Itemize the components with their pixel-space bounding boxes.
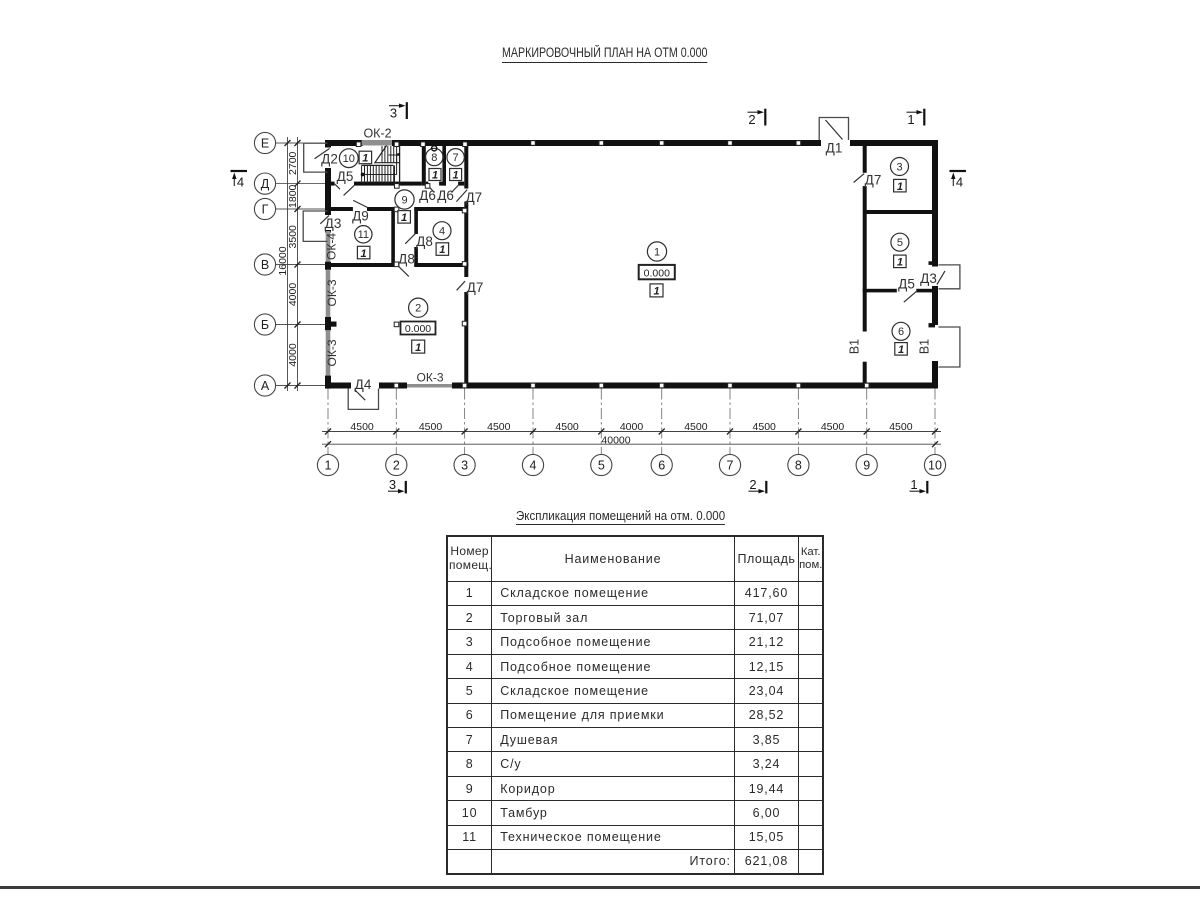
svg-text:Д7: Д7 bbox=[465, 190, 482, 205]
svg-text:В: В bbox=[261, 258, 269, 272]
svg-text:2: 2 bbox=[393, 458, 400, 472]
svg-text:4: 4 bbox=[530, 458, 537, 472]
svg-text:В1: В1 bbox=[848, 339, 862, 354]
svg-text:10: 10 bbox=[928, 458, 942, 472]
svg-text:10: 10 bbox=[343, 153, 355, 165]
svg-text:Д3: Д3 bbox=[920, 271, 937, 286]
svg-text:3: 3 bbox=[390, 106, 397, 121]
svg-text:4000: 4000 bbox=[287, 283, 299, 307]
svg-text:ОК-3: ОК-3 bbox=[325, 279, 339, 306]
svg-text:1: 1 bbox=[653, 286, 659, 298]
svg-text:1: 1 bbox=[897, 257, 903, 269]
svg-text:1: 1 bbox=[325, 458, 332, 472]
svg-text:0.000: 0.000 bbox=[644, 268, 670, 280]
svg-text:4500: 4500 bbox=[487, 421, 511, 433]
svg-text:1: 1 bbox=[362, 153, 368, 165]
svg-text:1: 1 bbox=[897, 181, 903, 193]
svg-text:4500: 4500 bbox=[350, 421, 374, 433]
svg-text:Д6: Д6 bbox=[437, 188, 454, 203]
svg-text:Д8: Д8 bbox=[416, 234, 433, 249]
svg-text:ОК-2: ОК-2 bbox=[363, 127, 391, 141]
svg-text:1: 1 bbox=[415, 342, 421, 354]
svg-text:1: 1 bbox=[910, 477, 917, 492]
svg-text:1: 1 bbox=[361, 248, 367, 260]
svg-text:9: 9 bbox=[863, 458, 870, 472]
svg-text:Е: Е bbox=[261, 136, 269, 150]
svg-text:0.000: 0.000 bbox=[405, 323, 431, 335]
svg-text:Д7: Д7 bbox=[865, 172, 882, 187]
svg-text:3: 3 bbox=[389, 477, 396, 492]
svg-text:Д1: Д1 bbox=[826, 141, 843, 156]
svg-text:1: 1 bbox=[432, 170, 438, 182]
svg-text:Д9: Д9 bbox=[352, 208, 369, 223]
svg-text:А: А bbox=[261, 379, 270, 393]
svg-text:4500: 4500 bbox=[753, 421, 777, 433]
svg-text:4000: 4000 bbox=[620, 421, 644, 433]
svg-text:Д6: Д6 bbox=[419, 188, 436, 203]
svg-text:6: 6 bbox=[658, 458, 665, 472]
svg-text:5: 5 bbox=[897, 237, 903, 249]
svg-text:2: 2 bbox=[749, 477, 756, 492]
svg-text:1: 1 bbox=[898, 344, 904, 356]
svg-text:4000: 4000 bbox=[287, 343, 299, 367]
svg-text:1800: 1800 bbox=[287, 184, 299, 208]
svg-text:2700: 2700 bbox=[287, 151, 299, 175]
svg-text:1: 1 bbox=[654, 246, 660, 258]
svg-text:8: 8 bbox=[795, 458, 802, 472]
svg-text:2: 2 bbox=[748, 112, 755, 127]
svg-text:Б: Б bbox=[261, 318, 269, 332]
svg-text:ОК-3: ОК-3 bbox=[417, 371, 444, 385]
svg-text:ОК-4: ОК-4 bbox=[325, 233, 339, 260]
svg-text:3500: 3500 bbox=[287, 225, 299, 249]
svg-text:4500: 4500 bbox=[684, 421, 708, 433]
svg-text:4: 4 bbox=[237, 175, 244, 190]
svg-text:Д8: Д8 bbox=[398, 252, 415, 267]
svg-text:4: 4 bbox=[439, 226, 445, 238]
svg-text:1: 1 bbox=[401, 212, 407, 224]
svg-text:Г: Г bbox=[262, 202, 269, 216]
svg-text:Д4: Д4 bbox=[355, 377, 372, 392]
svg-text:4500: 4500 bbox=[555, 421, 579, 433]
svg-text:40000: 40000 bbox=[601, 434, 630, 446]
svg-text:1: 1 bbox=[453, 170, 459, 182]
svg-text:8: 8 bbox=[431, 152, 437, 164]
svg-text:5: 5 bbox=[598, 458, 605, 472]
svg-text:ОК-3: ОК-3 bbox=[325, 339, 339, 366]
svg-text:4: 4 bbox=[956, 175, 963, 190]
svg-text:4500: 4500 bbox=[419, 421, 443, 433]
svg-text:Д2: Д2 bbox=[321, 152, 338, 167]
svg-text:7: 7 bbox=[727, 458, 734, 472]
svg-text:1: 1 bbox=[439, 244, 445, 256]
svg-text:Д5: Д5 bbox=[337, 169, 354, 184]
svg-text:9: 9 bbox=[401, 194, 407, 206]
svg-text:1: 1 bbox=[907, 112, 914, 127]
svg-text:Д7: Д7 bbox=[467, 280, 484, 295]
svg-text:2: 2 bbox=[415, 303, 421, 315]
svg-text:3: 3 bbox=[896, 161, 902, 173]
svg-text:В1: В1 bbox=[918, 339, 932, 354]
svg-text:4500: 4500 bbox=[821, 421, 845, 433]
svg-text:Д: Д bbox=[261, 177, 270, 191]
svg-text:Д5: Д5 bbox=[898, 277, 915, 292]
svg-text:6: 6 bbox=[898, 326, 904, 338]
svg-text:3: 3 bbox=[461, 458, 468, 472]
svg-text:Д3: Д3 bbox=[325, 216, 342, 231]
svg-text:7: 7 bbox=[453, 152, 459, 164]
svg-text:4500: 4500 bbox=[889, 421, 913, 433]
svg-text:16000: 16000 bbox=[277, 246, 289, 275]
svg-text:11: 11 bbox=[358, 229, 369, 241]
